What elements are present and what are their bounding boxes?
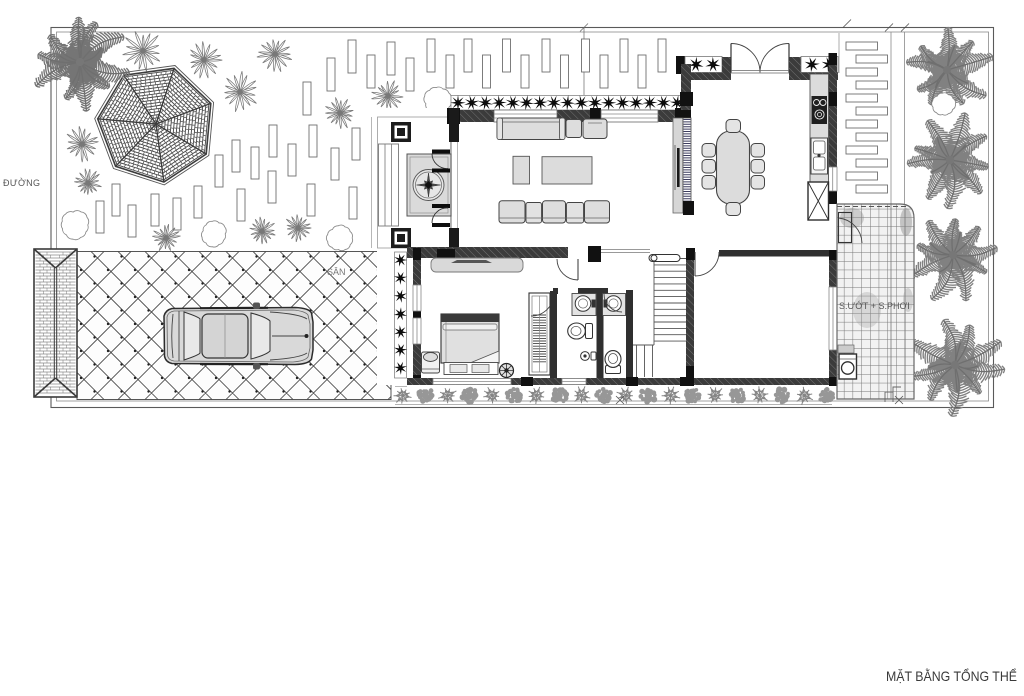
svg-text:SÂN: SÂN	[327, 267, 346, 277]
svg-text:MẶT BẰNG TỔNG THỂ: MẶT BẰNG TỔNG THỂ	[886, 667, 1017, 684]
svg-text:S.ƯỚT + S.PHƠI: S.ƯỚT + S.PHƠI	[839, 301, 910, 311]
svg-text:ĐƯỜNG: ĐƯỜNG	[3, 178, 40, 188]
